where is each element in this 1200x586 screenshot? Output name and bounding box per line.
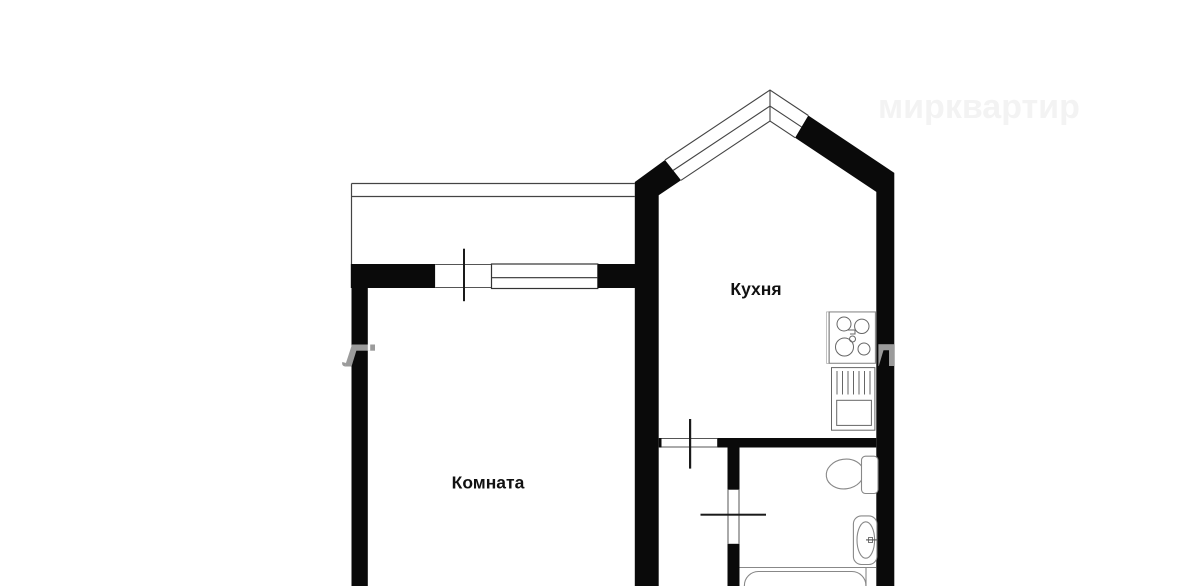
svg-text:Комната: Комната xyxy=(452,473,525,493)
svg-text:мирквартир: мирквартир xyxy=(878,88,1080,126)
svg-text:Кухня: Кухня xyxy=(730,279,781,299)
